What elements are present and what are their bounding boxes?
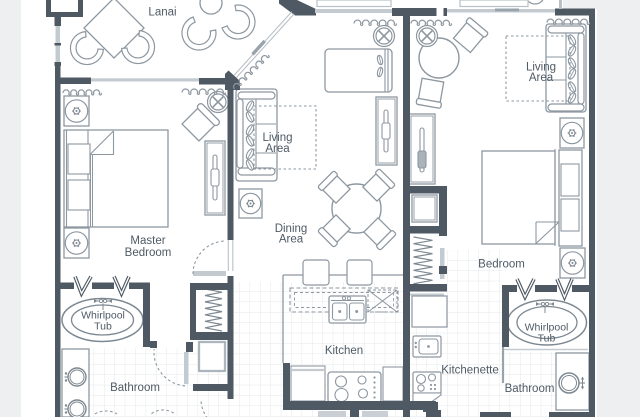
svg-text:Kitchenette: Kitchenette xyxy=(441,365,499,377)
svg-text:Bedroom: Bedroom xyxy=(125,247,172,259)
svg-text:Area: Area xyxy=(279,234,304,246)
svg-text:Bathroom: Bathroom xyxy=(110,382,160,394)
svg-text:Area: Area xyxy=(529,72,554,84)
svg-text:Tub: Tub xyxy=(538,333,556,345)
svg-text:Area: Area xyxy=(265,143,290,155)
svg-text:Bathroom: Bathroom xyxy=(505,383,555,395)
svg-text:Lanai: Lanai xyxy=(148,7,176,19)
svg-text:Kitchen: Kitchen xyxy=(325,345,363,357)
svg-text:Master: Master xyxy=(130,235,165,247)
svg-text:Tub: Tub xyxy=(94,321,112,333)
svg-text:Bedroom: Bedroom xyxy=(478,259,525,271)
